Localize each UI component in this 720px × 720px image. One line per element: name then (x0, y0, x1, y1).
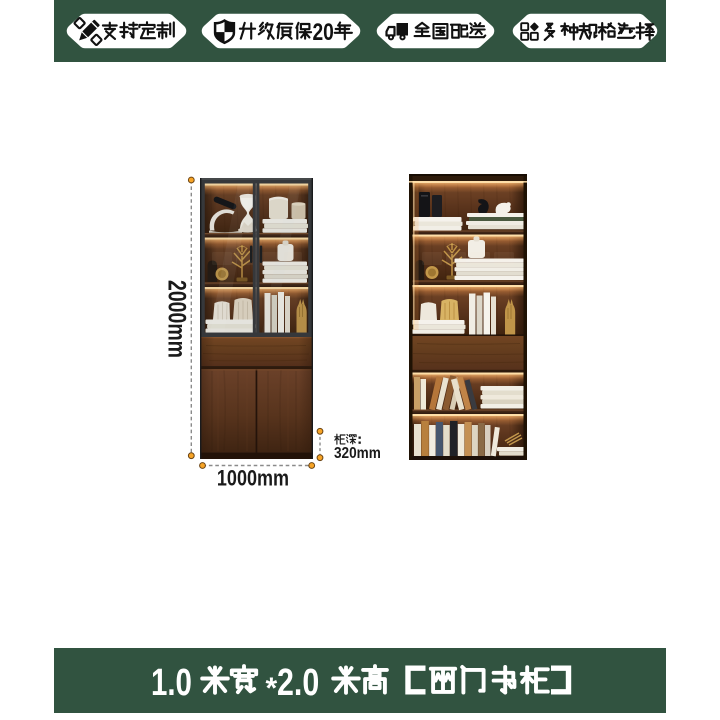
svg-text:20: 20 (313, 18, 334, 46)
svg-text:2.0: 2.0 (277, 662, 319, 704)
svg-text:1.0: 1.0 (151, 661, 192, 703)
svg-text:2000mm: 2000mm (163, 280, 191, 358)
svg-text:*: * (266, 672, 278, 705)
svg-text:1000mm: 1000mm (217, 467, 289, 491)
svg-text:320mm: 320mm (334, 445, 381, 462)
